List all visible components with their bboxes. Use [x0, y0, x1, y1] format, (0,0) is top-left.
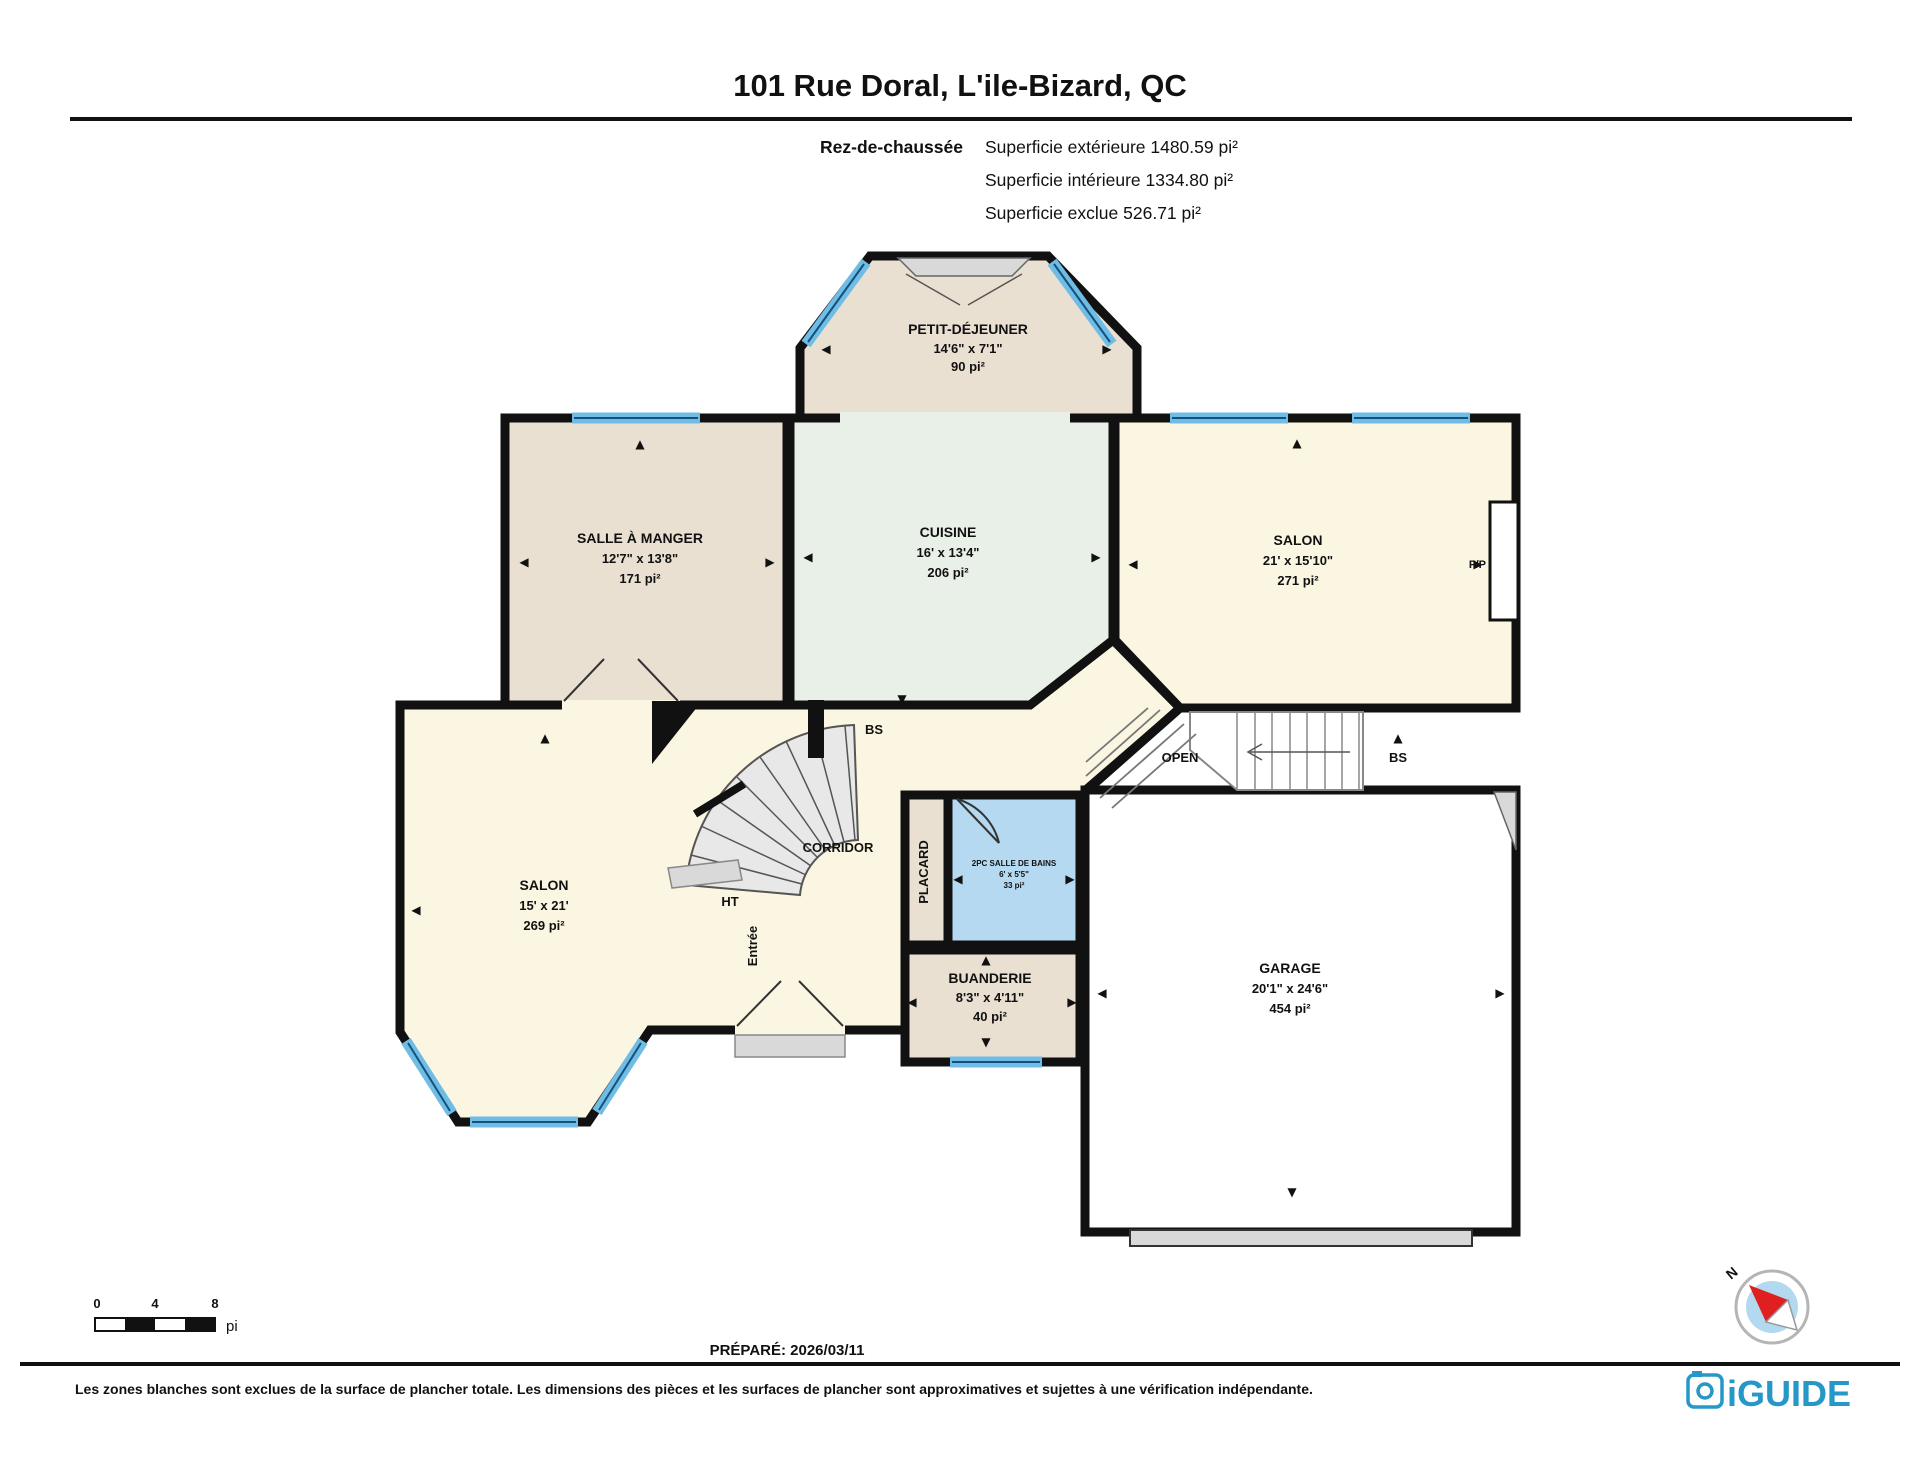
svg-text:▲: ▲ [540, 731, 550, 745]
room-label-laundry: BUANDERIE [948, 970, 1031, 986]
room-area-laundry: 40 pi² [973, 1009, 1008, 1024]
scale-bar: 0 4 8 pi [93, 1296, 237, 1335]
area-exterior: Superficie extérieure 1480.59 pi² [985, 137, 1238, 157]
room-label-breakfast: PETIT-DÉJEUNER [908, 321, 1028, 337]
room-kitchen [790, 418, 1113, 705]
floor-plan-page: 101 Rue Doral, L'ile-Bizard, QC Rez-de-c… [0, 0, 1920, 1483]
compass: N [1723, 1264, 1808, 1343]
svg-text:◀: ◀ [803, 550, 813, 564]
room-label-bath: 2PC SALLE DE BAINS [972, 859, 1057, 868]
iguide-camera-lens [1698, 1384, 1712, 1398]
room-dims-laundry: 8'3" x 4'11" [956, 990, 1024, 1005]
area-excluded: Superficie exclue 526.71 pi² [985, 203, 1201, 223]
ht-label: HT [721, 894, 738, 909]
bs-curved-label: BS [865, 722, 883, 737]
open-label: OPEN [1162, 750, 1199, 765]
room-label-kitchen: CUISINE [920, 524, 977, 540]
svg-text:▶: ▶ [1091, 550, 1101, 564]
svg-text:▼: ▼ [981, 1035, 991, 1049]
corridor-label: CORRIDOR [803, 840, 874, 855]
svg-text:▲: ▲ [1292, 436, 1302, 450]
scale-four: 4 [151, 1296, 159, 1311]
room-label-salon-left: SALON [520, 877, 569, 893]
entry-label: Entrée [745, 926, 760, 966]
bs-main-label: BS [1389, 750, 1407, 765]
main-staircase [1190, 712, 1363, 790]
scale-zero: 0 [93, 1296, 100, 1311]
svg-text:◀: ◀ [1097, 986, 1107, 1000]
scale-eight: 8 [211, 1296, 218, 1311]
header-divider [70, 117, 1852, 121]
garage-door [1130, 1230, 1472, 1246]
svg-text:▶: ▶ [1065, 872, 1075, 886]
room-area-kitchen: 206 pi² [927, 565, 969, 580]
floor-label: Rez-de-chaussée [820, 137, 963, 157]
room-area-garage: 454 pi² [1269, 1001, 1311, 1016]
placard-label: PLACARD [916, 840, 931, 904]
svg-text:◀: ◀ [953, 872, 963, 886]
room-dims-kitchen: 16' x 13'4" [917, 545, 980, 560]
room-laundry [905, 950, 1080, 1062]
room-dims-breakfast: 14'6" x 7'1" [933, 341, 1002, 356]
iguide-logo: iGUIDE [1688, 1371, 1851, 1414]
footer-divider [20, 1362, 1900, 1366]
room-area-salon-left: 269 pi² [523, 918, 565, 933]
svg-text:◀: ◀ [1128, 557, 1138, 571]
room-label-garage: GARAGE [1259, 960, 1320, 976]
disclaimer-text: Les zones blanches sont exclues de la su… [75, 1381, 1313, 1397]
room-area-dining: 171 pi² [619, 571, 661, 586]
svg-text:▲: ▲ [1393, 731, 1403, 745]
svg-text:▼: ▼ [897, 692, 907, 706]
svg-text:◀: ◀ [821, 342, 831, 356]
iguide-wordmark: iGUIDE [1727, 1373, 1851, 1414]
room-dims-salon-right: 21' x 15'10" [1263, 553, 1333, 568]
scale-unit: pi [226, 1318, 238, 1335]
iguide-camera-icon [1688, 1375, 1722, 1407]
svg-text:◀: ◀ [519, 555, 529, 569]
stair-wall-stub [808, 700, 824, 758]
svg-text:◀: ◀ [411, 903, 421, 917]
svg-text:▶: ▶ [1473, 557, 1483, 571]
room-dims-salon-left: 15' x 21' [519, 898, 569, 913]
page-title: 101 Rue Doral, L'ile-Bizard, QC [733, 68, 1187, 103]
svg-text:▶: ▶ [1495, 986, 1505, 1000]
svg-text:▲: ▲ [981, 953, 991, 967]
svg-text:◀: ◀ [907, 995, 917, 1009]
svg-text:▶: ▶ [1102, 342, 1112, 356]
prepared-date: PRÉPARÉ: 2026/03/11 [710, 1342, 865, 1359]
room-area-salon-right: 271 pi² [1277, 573, 1319, 588]
area-interior: Superficie intérieure 1334.80 pi² [985, 170, 1233, 190]
room-label-dining: SALLE À MANGER [577, 530, 703, 546]
room-area-breakfast: 90 pi² [951, 359, 986, 374]
iguide-camera-tab [1692, 1371, 1702, 1377]
room-dims-bath: 6' x 5'5" [999, 870, 1029, 879]
svg-text:▲: ▲ [635, 437, 645, 451]
svg-text:▼: ▼ [1287, 1185, 1297, 1199]
svg-text:▶: ▶ [765, 555, 775, 569]
floor-plan-canvas: 101 Rue Doral, L'ile-Bizard, QC Rez-de-c… [0, 0, 1920, 1483]
room-dims-dining: 12'7" x 13'8" [602, 551, 678, 566]
entry-porch [735, 1035, 845, 1057]
north-label: N [1723, 1264, 1741, 1283]
svg-text:▶: ▶ [1067, 995, 1077, 1009]
room-dims-garage: 20'1" x 24'6" [1252, 981, 1328, 996]
room-area-bath: 33 pi² [1004, 881, 1025, 890]
room-label-salon-right: SALON [1274, 532, 1323, 548]
